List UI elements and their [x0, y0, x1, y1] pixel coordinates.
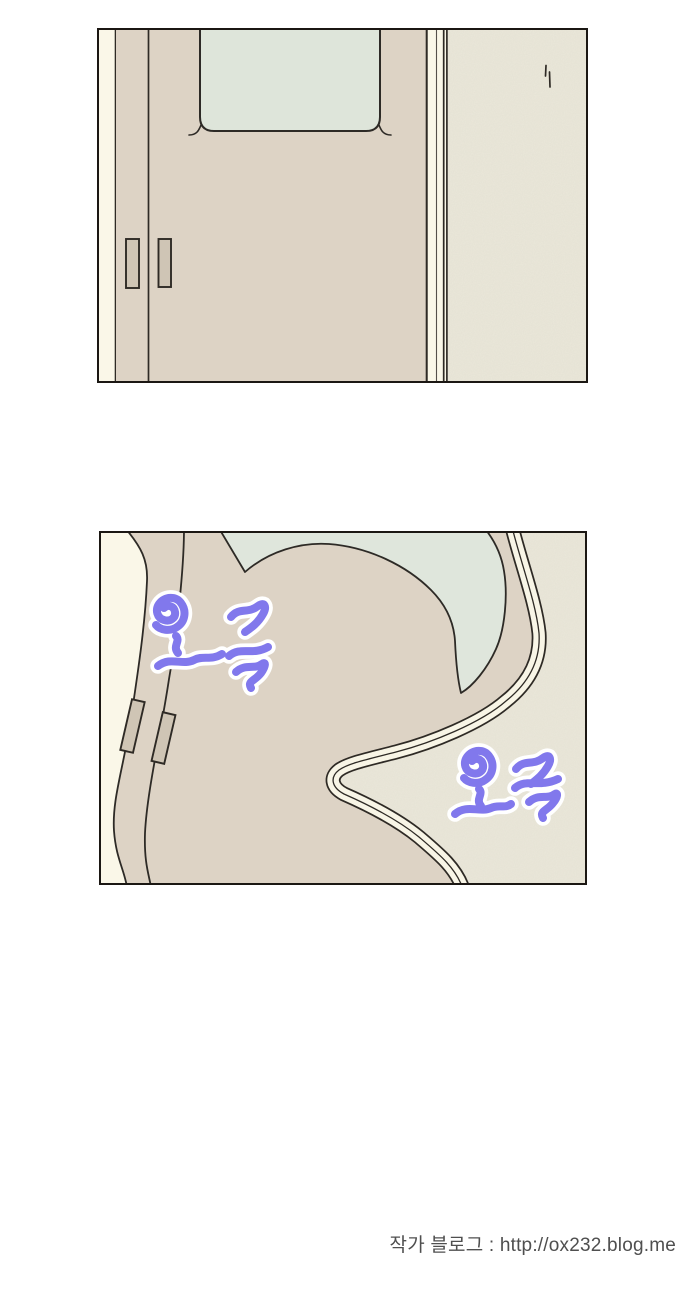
door-handle-right: [159, 239, 172, 287]
door-handle-left: [126, 239, 139, 288]
wall-texture: [448, 30, 586, 381]
door-jamb-left: [99, 30, 115, 381]
door-jamb-right: [428, 30, 448, 381]
comic-panel-door: [97, 28, 588, 383]
author-blog-caption: 작가 블로그 : http://ox232.blog.me: [390, 1235, 676, 1257]
comic-panel-door-warped: [99, 531, 587, 885]
door-scene-art: [99, 30, 586, 381]
warped-scene-art: [101, 533, 585, 883]
comic-page: 작가 블로그 : http://ox232.blog.me: [0, 0, 690, 1306]
door-window: [200, 30, 380, 131]
